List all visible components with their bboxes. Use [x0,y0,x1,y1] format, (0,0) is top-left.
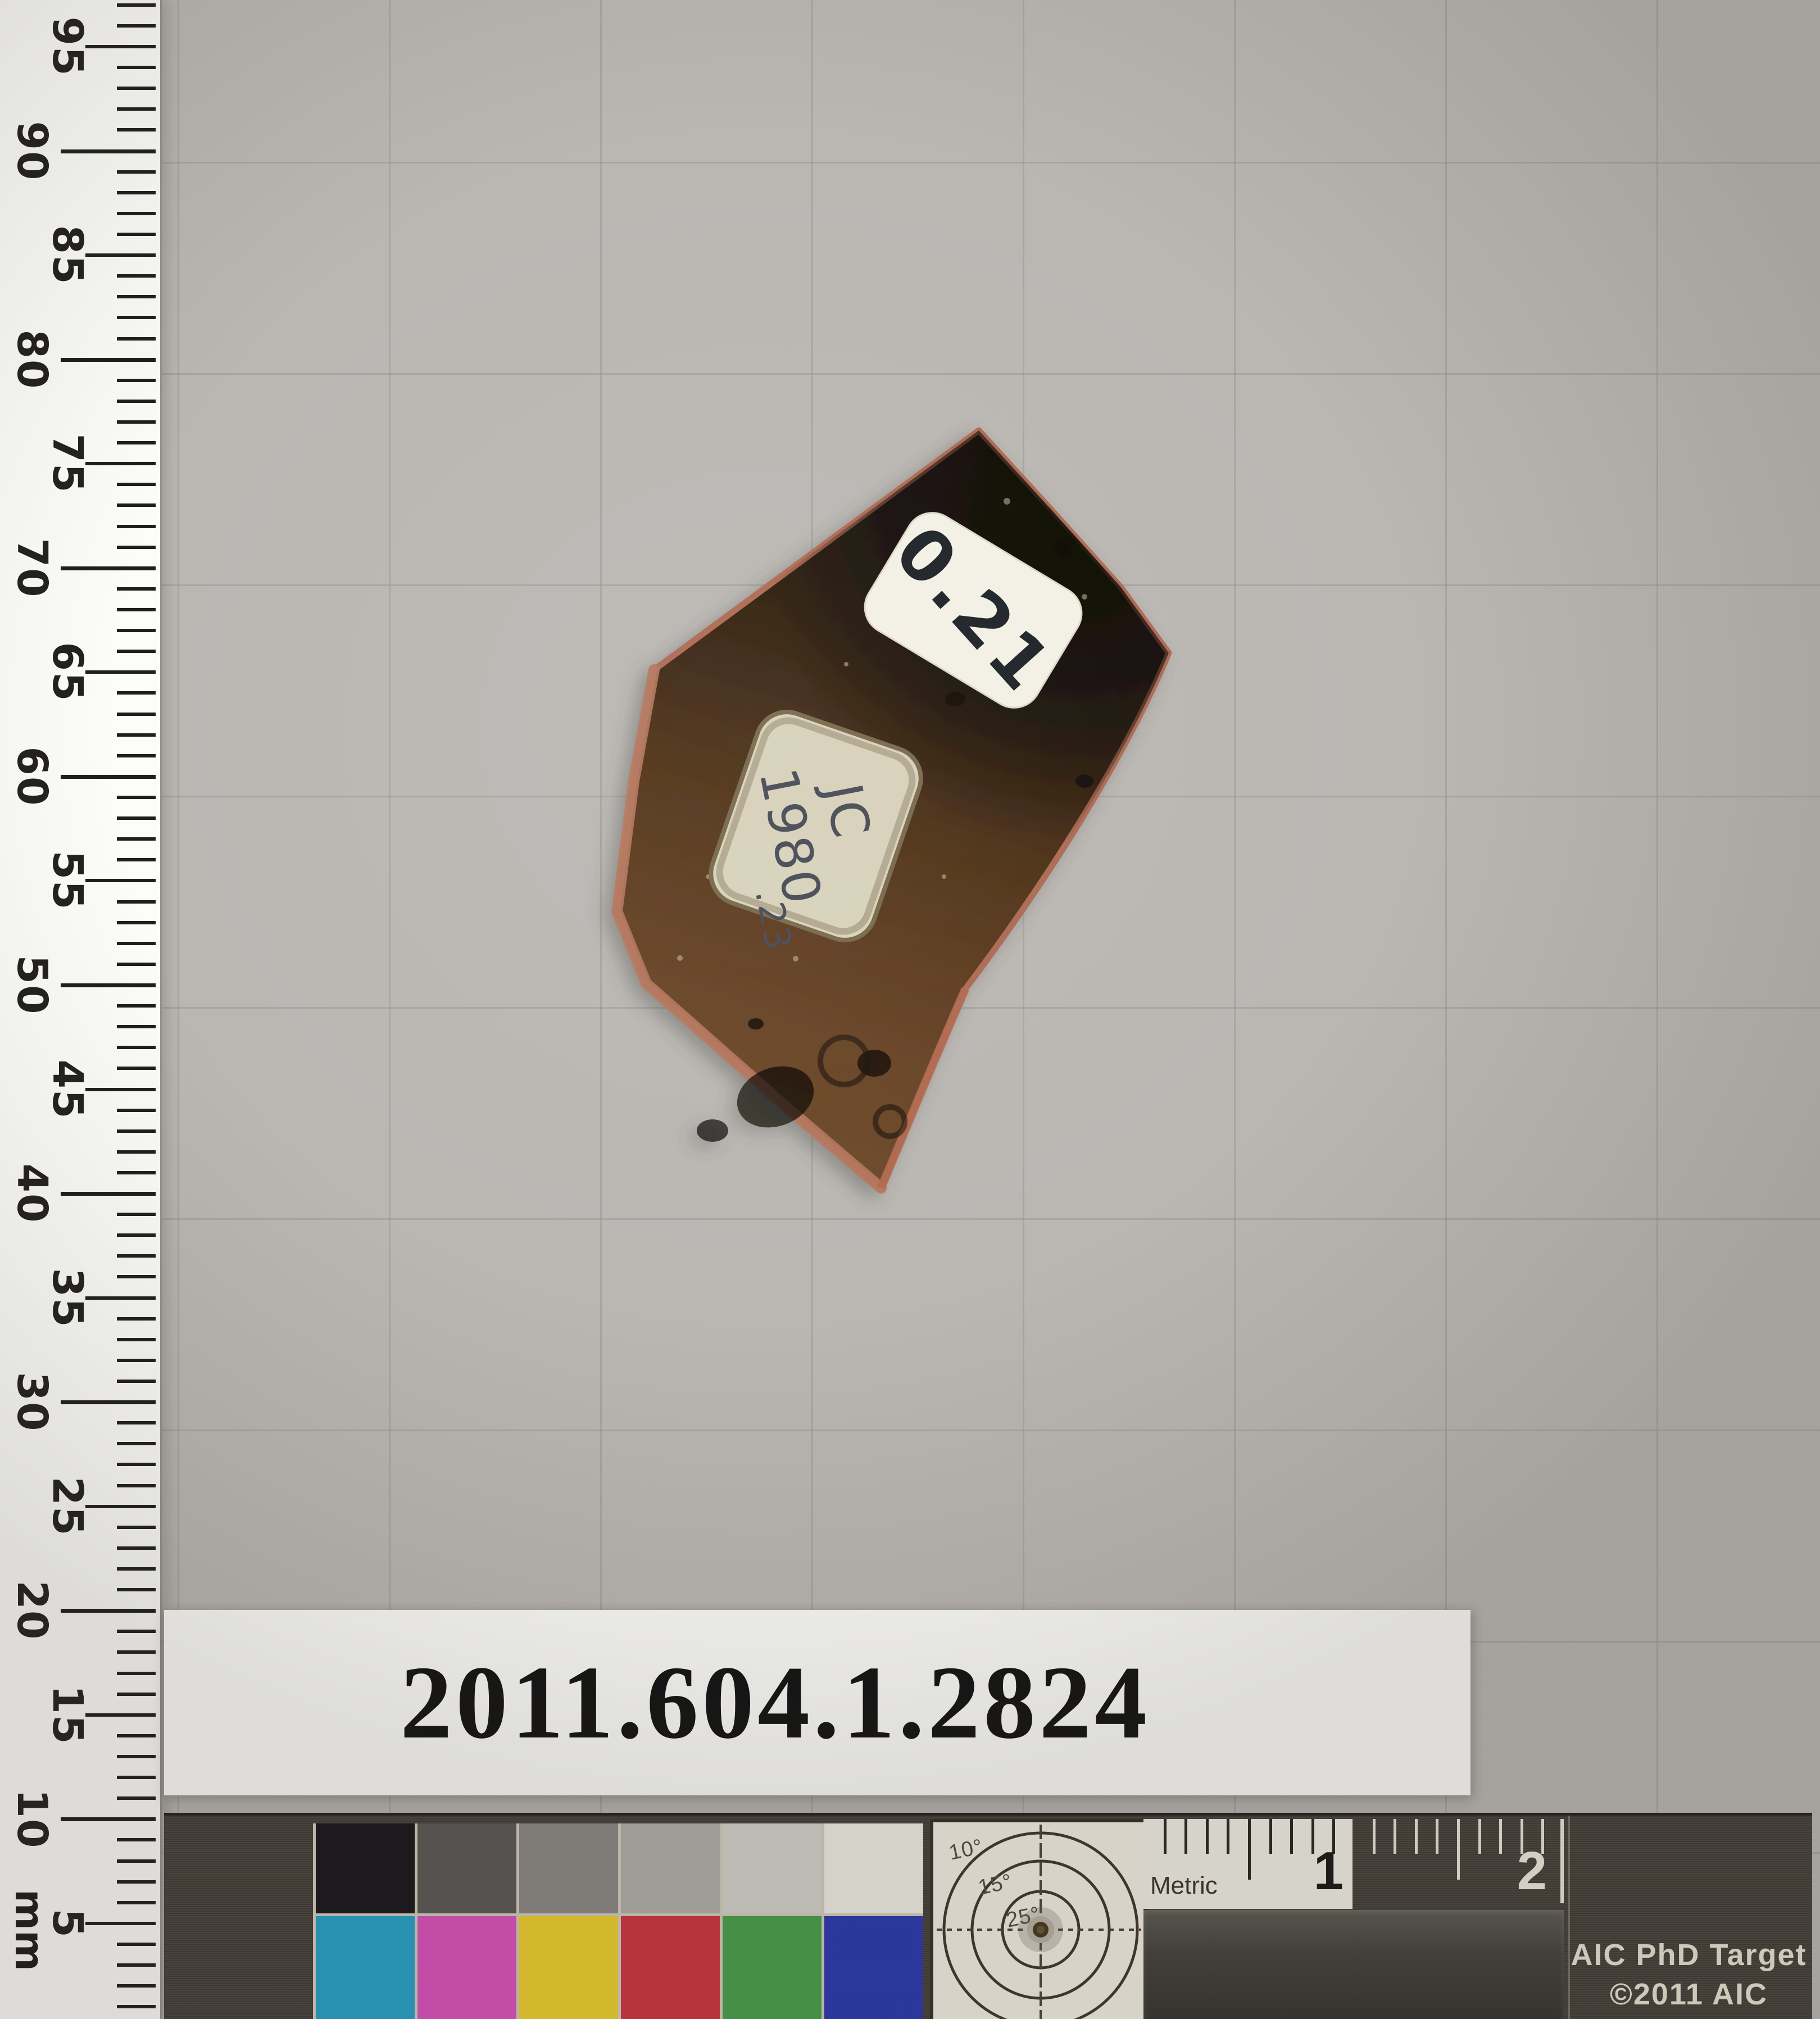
ruler-tick [117,1233,156,1237]
ruler-tick [117,1734,156,1737]
ruler-tick [117,1880,156,1884]
ruler-tick [117,1943,156,1946]
calibration-patch [723,1916,822,2019]
ruler-tick [117,503,156,507]
accession-number: 2011.604.1.2824 [400,1643,1234,1763]
metric-mm-tick [1457,1819,1460,1880]
ruler-tick [117,483,156,486]
metric-mm-tick [1206,1819,1209,1854]
ruler-tick [117,1796,156,1800]
ruler-label: 10 [8,1789,56,1849]
ruler-tick [117,316,156,319]
ruler-tick [117,1004,156,1008]
metric-mm-tick [1415,1819,1418,1854]
ruler-tick [117,1526,156,1529]
calibration-patch [824,1823,923,1913]
ruler-tick [117,1067,156,1070]
ruler-tick [117,691,156,695]
grayscale-patch-row [316,1823,923,1913]
bullseye-panel: 10°15°25° [930,1819,1147,2019]
ruler-tick [117,1150,156,1154]
ruler-label: 75 [43,434,92,494]
ruler-tick [117,921,156,924]
ruler-tick [117,1109,156,1112]
ruler-tick [117,1213,156,1216]
accession-strip: 2011.604.1.2824 [164,1610,1470,1795]
ruler-tick [117,1171,156,1174]
ruler-tick [117,1588,156,1591]
ruler-label: 30 [8,1372,56,1432]
ruler-tick [117,1546,156,1550]
ruler-tick [85,462,156,465]
ruler-label: 70 [8,538,56,598]
ruler-tick [117,1984,156,1988]
ruler-tick [117,170,156,174]
ruler-tick [117,87,156,90]
ruler-tick [117,1859,156,1863]
ruler-tick [61,1400,156,1404]
cm-label-2: 2 [1517,1840,1547,1902]
metric-label: Metric [1150,1872,1218,1900]
metric-mm-tick [1436,1819,1438,1854]
ruler-label: 25 [43,1476,92,1536]
ruler-tick [117,66,156,69]
ruler-tick [117,1275,156,1278]
ruler-tick [117,837,156,841]
ruler-tick [85,253,156,257]
ruler-label: 80 [8,329,56,389]
calibration-patch [723,1823,822,1913]
ruler-tick [117,1901,156,1904]
ruler-tick [117,816,156,820]
color-patch-row [316,1916,923,2019]
ruler-tick [117,796,156,799]
ruler-tick [61,149,156,153]
ruler-tick [117,1421,156,1424]
ruler-tick [117,1650,156,1654]
ruler-tick [85,1713,156,1717]
calibration-patch [824,1916,923,2019]
ruler-tick [117,1484,156,1487]
ruler-tick [61,983,156,987]
ruler-tick [117,733,156,737]
ruler-tick [117,546,156,549]
ruler-tick [85,670,156,674]
ruler-tick [85,1088,156,1091]
ruler-label: 65 [43,642,92,702]
ruler-tick [85,1505,156,1508]
calibration-patch [621,1916,720,2019]
ruler-label: 45 [43,1059,92,1119]
ruler-tick [117,1254,156,1258]
ruler-tick [117,128,156,131]
ruler-tick [61,358,156,362]
ruler-label: 35 [43,1268,92,1328]
ruler-tick [117,420,156,424]
metric-mm-tick [1227,1819,1229,1854]
metric-mm-tick [1478,1819,1481,1854]
ruler-tick [117,525,156,528]
ruler-tick [61,1609,156,1613]
ruler-tick [117,1755,156,1758]
ruler-tick [117,233,156,236]
ruler-label: 55 [43,851,92,911]
ruler-tick [117,2005,156,2008]
calibration-patches [313,1823,923,2019]
ruler-tick [117,1129,156,1133]
ruler-tick [117,629,156,632]
ruler-tick [117,587,156,591]
metric-mm-tick [1373,1819,1376,1854]
brand-line-1: AIC PhD Target [1571,1935,1807,1975]
ruler-label: 15 [43,1685,92,1745]
ruler-label: 85 [43,225,92,285]
ruler-tick [117,337,156,341]
metric-mm-tick [1248,1819,1251,1880]
ruler-tick [117,1338,156,1341]
metric-ruler-dark-segment: 2 [1352,1819,1564,1909]
metric-mm-tick [1394,1819,1396,1854]
ruler-tick [117,3,156,7]
ruler-tick [117,191,156,194]
ruler-label: 60 [8,746,56,806]
ruler-tick [117,1963,156,1967]
ruler-tick [117,274,156,278]
metric-mm-tick [1184,1819,1187,1854]
ruler-tick [117,713,156,716]
calibration-patch [519,1823,618,1913]
cm-2-tick [1560,1819,1564,1903]
ruler-tick [85,879,156,882]
ruler-tick [117,900,156,904]
ruler-tick [117,754,156,757]
ruler-tick [117,963,156,966]
ruler-unit-label: mm [6,1889,52,1971]
ruler-label: 90 [8,121,56,181]
ruler-tick [117,1359,156,1362]
ruler-tick [117,1776,156,1779]
ruler-tick [117,107,156,111]
metric-mm-tick [1290,1819,1293,1854]
ruler-tick [117,650,156,653]
ruler-tick [117,212,156,215]
ruler-tick [61,1192,156,1196]
ruler-tick [117,942,156,945]
ruler-tick [117,1630,156,1633]
ruler-tick [117,295,156,298]
ruler-tick [61,775,156,779]
ruler-tick [117,400,156,403]
ruler-tick [117,1672,156,1675]
calibration-patch [316,1916,415,2019]
ruler-tick [117,1567,156,1571]
calibration-patch [417,1916,516,2019]
calibration-patch [621,1823,720,1913]
metric-ruler-white-segment: Metric 1 [1143,1819,1352,1909]
ruler-tick [117,441,156,444]
ruler-tick [85,45,156,48]
ruler-label: 50 [8,955,56,1015]
measurement-ruler: 9590858075706560555045403530252015105 mm [0,0,162,2019]
calibration-patch [417,1823,516,1913]
metric-mm-tick [1269,1819,1272,1854]
center-pin-core [1037,1926,1045,1934]
ruler-tick [117,1317,156,1321]
ruler-tick [85,1922,156,1925]
ruler-tick [117,1046,156,1049]
pottery-sherd: 0.21 JC 1980 .23 [617,430,1169,1188]
ruler-tick [117,1838,156,1841]
brand-line-2: ©2011 AIC [1610,1975,1768,2014]
ruler-tick [117,1380,156,1383]
metric-mm-tick [1164,1819,1167,1854]
artifact-photo: 0.21 JC 1980 .23 95908580757065605550454… [0,0,1820,2019]
ruler-tick [117,1463,156,1466]
ruler-tick [117,1025,156,1028]
calibration-patch [316,1823,415,1913]
ruler-tick [117,608,156,611]
ruler-label: 95 [43,17,92,77]
ruler-label: 40 [8,1164,56,1224]
calibration-patch [519,1916,618,2019]
metric-mm-tick [1499,1819,1502,1854]
ruler-tick [117,858,156,861]
calibration-target: 10°15°25° Metric 1 2 AIC PhD Target ©201… [164,1813,1812,2019]
ruler-tick [61,566,156,570]
ruler-tick [61,1817,156,1821]
ruler-tick [117,1442,156,1445]
ruler-tick [85,1296,156,1300]
brand-panel: AIC PhD Target ©2011 AIC [1568,1816,1808,2019]
ruler-tick [117,379,156,382]
cm-label-1: 1 [1314,1840,1344,1902]
gloss-gray-patch [1143,1910,1564,2019]
ruler-label: 20 [8,1581,56,1641]
ruler-tick [117,24,156,28]
ruler-tick [117,1693,156,1696]
